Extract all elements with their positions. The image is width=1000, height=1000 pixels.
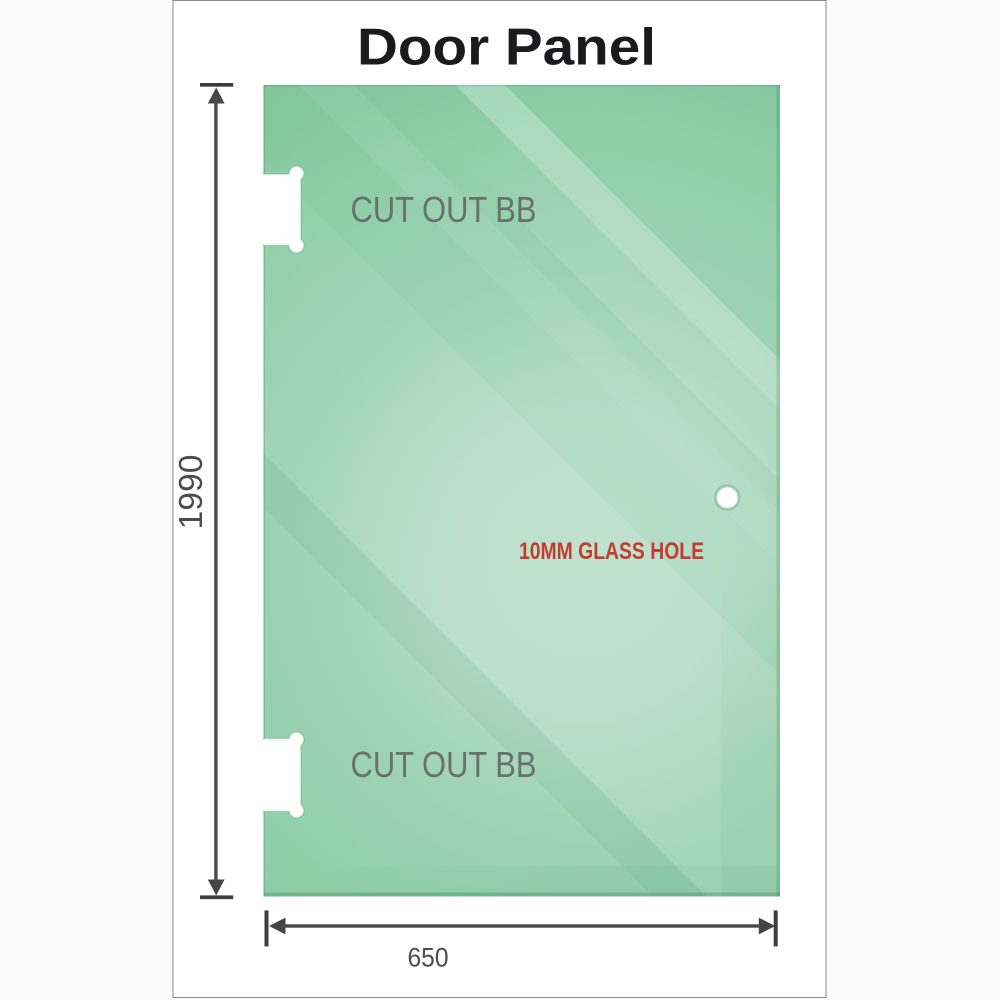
- svg-text:CUT OUT BB: CUT OUT BB: [351, 744, 537, 785]
- svg-text:Door Panel: Door Panel: [357, 19, 656, 77]
- svg-text:650: 650: [408, 943, 449, 973]
- svg-text:10MM GLASS HOLE: 10MM GLASS HOLE: [519, 538, 704, 565]
- svg-text:CUT OUT BB: CUT OUT BB: [351, 189, 537, 230]
- svg-text:1990: 1990: [172, 455, 209, 530]
